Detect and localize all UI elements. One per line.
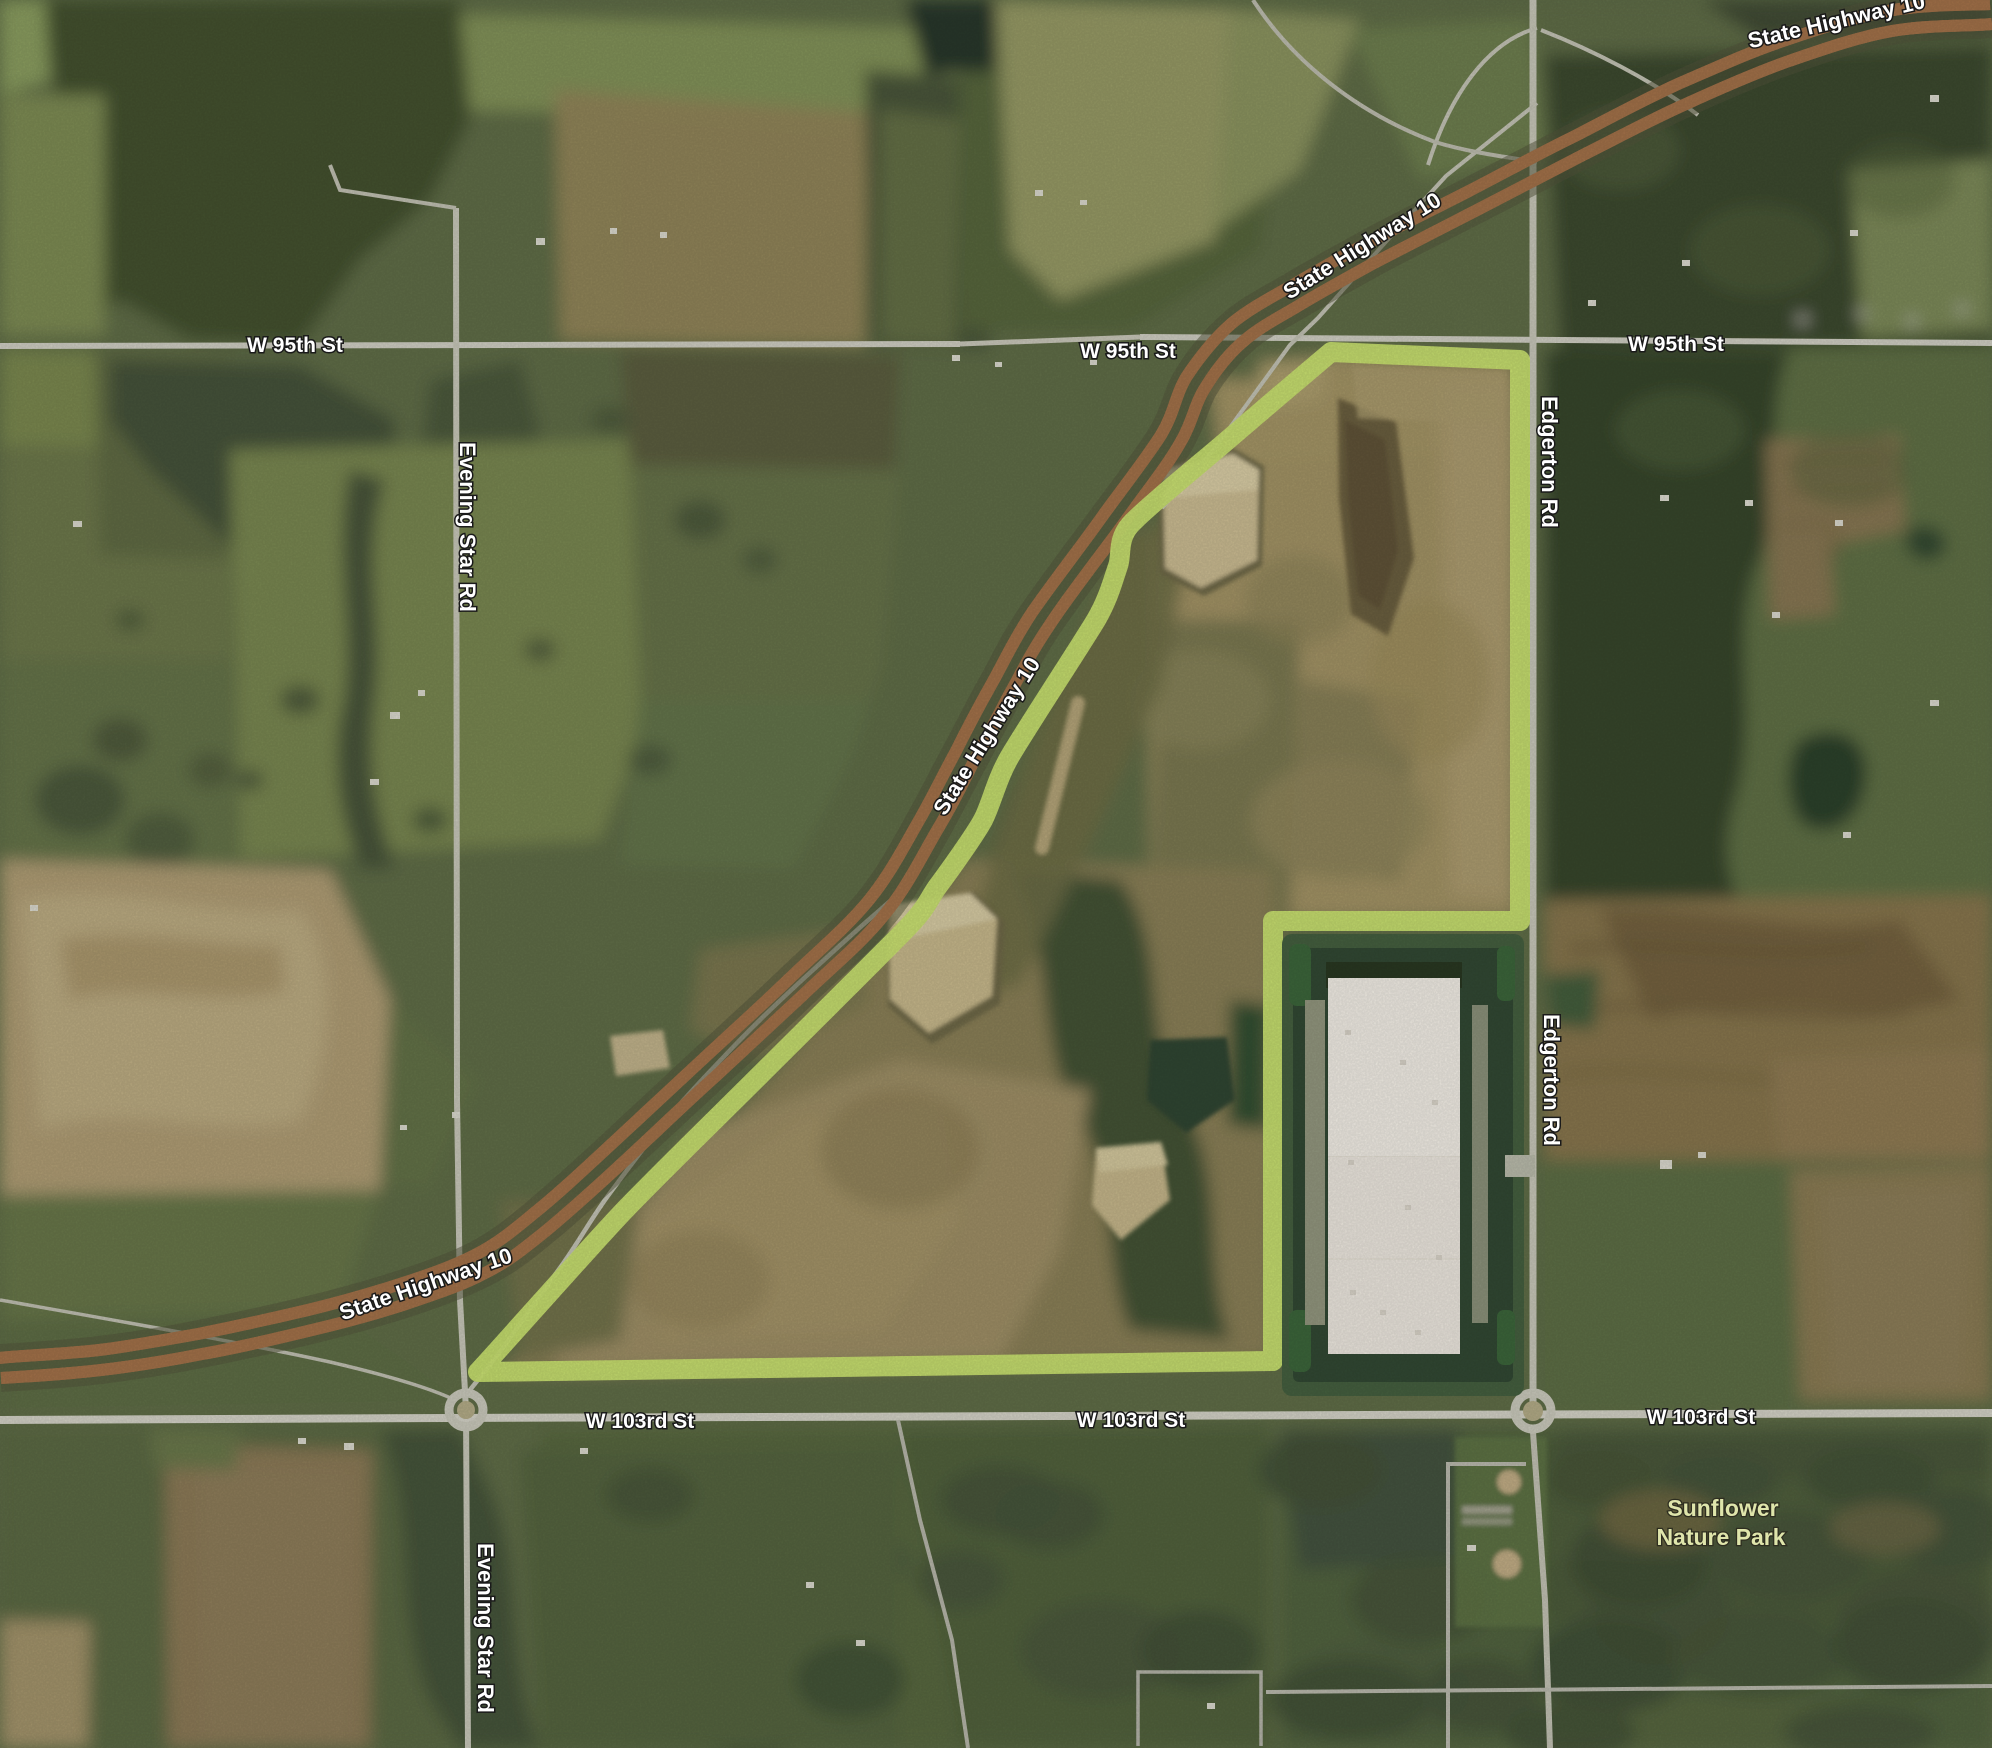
svg-text:Evening Star Rd: Evening Star Rd xyxy=(473,1543,498,1713)
svg-text:Edgerton Rd: Edgerton Rd xyxy=(1537,396,1562,528)
svg-text:Sunflower: Sunflower xyxy=(1667,1495,1778,1521)
svg-text:W 103rd St: W 103rd St xyxy=(1647,1406,1756,1429)
svg-text:Edgerton Rd: Edgerton Rd xyxy=(1539,1014,1564,1146)
svg-text:Evening Star Rd: Evening Star Rd xyxy=(455,442,480,612)
svg-text:W 103rd St: W 103rd St xyxy=(1077,1409,1186,1432)
svg-text:W 95th St: W 95th St xyxy=(1080,340,1176,363)
svg-text:Nature Park: Nature Park xyxy=(1656,1524,1785,1550)
svg-text:W 95th St: W 95th St xyxy=(1628,333,1724,356)
svg-text:W 103rd St: W 103rd St xyxy=(586,1410,695,1433)
svg-text:W 95th St: W 95th St xyxy=(247,334,343,357)
